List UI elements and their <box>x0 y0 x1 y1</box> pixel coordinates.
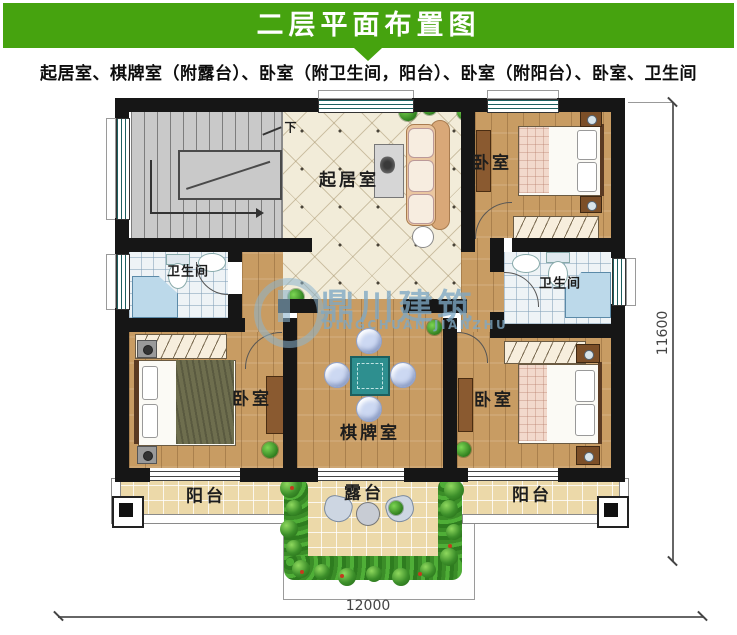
blanket <box>176 360 234 444</box>
wall-bottom-c <box>404 468 468 482</box>
window-sill <box>626 258 636 306</box>
bush <box>286 540 302 556</box>
terrace-label: 露台 <box>344 479 384 504</box>
dim-leader-top <box>628 102 672 103</box>
window-sill <box>487 90 559 99</box>
table-decor <box>380 156 395 174</box>
headboard <box>600 124 604 196</box>
sofa-cushion <box>408 194 434 224</box>
window-sill <box>318 90 414 99</box>
bush <box>420 562 436 578</box>
chess-room-label: 棋牌室 <box>340 419 400 444</box>
headboard <box>598 362 602 444</box>
pillow <box>577 130 597 160</box>
dim-height-label: 11600 <box>655 303 671 363</box>
watermark-logo-bar <box>278 290 290 322</box>
plant <box>262 442 278 458</box>
pillar-core <box>604 503 618 517</box>
wall-right-a <box>611 98 625 258</box>
bush <box>280 520 298 538</box>
pillow <box>575 370 595 402</box>
sofa-cushion <box>408 160 434 192</box>
stair-arrow-line <box>150 212 256 214</box>
plant <box>456 442 471 457</box>
headboard <box>134 360 139 444</box>
page-title: 二层平面布置图 <box>3 3 734 48</box>
bush <box>446 524 462 540</box>
balcony-right-label: 阳台 <box>512 481 552 506</box>
wall-bedroom-tr-bottom <box>512 238 625 252</box>
wall-living-right <box>461 112 475 252</box>
nightstand <box>137 340 157 358</box>
wall-left-a <box>115 98 129 118</box>
wall-stairs-bottom <box>115 238 312 252</box>
mahjong-table <box>350 356 390 396</box>
pillar-core <box>119 503 133 517</box>
stool <box>390 362 416 388</box>
bush <box>392 568 410 586</box>
pillow <box>577 162 597 192</box>
nightstand <box>137 446 157 464</box>
bathroom-left-label: 卫生间 <box>167 261 209 280</box>
dim-line-right <box>672 102 674 562</box>
wall-top-mid <box>412 98 487 112</box>
dresser <box>458 378 473 432</box>
corner-pillar-right <box>597 496 629 528</box>
mahjong-table-top <box>357 363 383 389</box>
pillow <box>142 366 158 400</box>
sink <box>512 254 540 273</box>
dim-line-bottom <box>58 616 703 618</box>
bedroom-bottom-right-label: 卧室 <box>474 386 514 411</box>
bush <box>444 480 464 500</box>
nightstand-knob <box>584 452 594 462</box>
window-right-bath <box>612 258 626 306</box>
nightstand <box>576 446 600 465</box>
stair-arrow-line <box>150 160 152 214</box>
bed-mattress <box>519 365 547 441</box>
side-table <box>412 226 434 248</box>
bathroom-right-label: 卫生间 <box>539 273 581 292</box>
nightstand-knob <box>584 350 594 360</box>
terrace-table <box>356 502 380 526</box>
bedroom-bottom-left-label: 卧室 <box>232 385 272 410</box>
wall-bath-left-a <box>228 252 242 262</box>
bush <box>366 566 382 582</box>
plant <box>389 501 403 515</box>
wall-chess-right <box>443 318 457 468</box>
bush <box>292 560 310 578</box>
nightstand <box>576 344 600 363</box>
window-top-bedroom <box>487 99 559 113</box>
wall-bottom-a <box>115 468 150 482</box>
bedroom-top-right-label: 卧室 <box>472 149 512 174</box>
window-top-living <box>318 99 414 113</box>
pillow <box>575 404 595 436</box>
nightstand <box>580 196 602 213</box>
nightstand-knob <box>143 451 153 461</box>
window-sill <box>106 254 116 310</box>
berry <box>290 486 294 490</box>
bush <box>286 500 302 516</box>
floor-plan-page: 二层平面布置图 起居室、棋牌室（附露台）、卧室（附卫生间，阳台）、卧室（附阳台）… <box>0 0 737 635</box>
sliding-door-balcony-left <box>150 471 240 481</box>
wall-bottom-d <box>558 468 625 482</box>
bed-mattress <box>519 127 549 193</box>
room-list-subtitle: 起居室、棋牌室（附露台）、卧室（附卫生间，阳台）、卧室（附阳台）、卧室、卫生间 <box>0 59 737 84</box>
nightstand-knob <box>587 115 597 125</box>
berry <box>418 572 422 576</box>
nightstand-knob <box>587 201 597 211</box>
nightstand-knob <box>143 345 153 355</box>
wall-bath-right-a <box>490 238 504 272</box>
window-left-stairs <box>116 118 130 220</box>
wardrobe-top-right <box>513 216 599 239</box>
stair-arrow-head <box>256 208 264 218</box>
living-room-label: 起居室 <box>319 166 379 191</box>
bush <box>314 564 330 580</box>
pillow <box>142 404 158 438</box>
wall-left-rooms-mid <box>115 318 245 332</box>
wall-bath-right-bottom <box>490 324 625 338</box>
wall-top-left <box>115 98 318 112</box>
window-left-bath <box>116 254 130 310</box>
bush <box>440 500 458 518</box>
watermark-latin: DINGCHUAN JIANZHU <box>323 318 508 332</box>
nightstand <box>580 110 602 127</box>
berry <box>340 574 344 578</box>
wardrobe-bottom-right <box>504 341 586 364</box>
corner-pillar-left <box>112 496 144 528</box>
wall-left-c <box>115 308 129 482</box>
wall-bottom-b <box>240 468 318 482</box>
balcony-left-label: 阳台 <box>186 482 226 507</box>
stairs-down-label: 下 <box>284 119 297 136</box>
dim-width-label: 12000 <box>328 598 408 614</box>
bush <box>440 548 458 566</box>
sliding-door-balcony-right <box>468 471 558 481</box>
stool <box>324 362 350 388</box>
window-sill <box>106 118 116 220</box>
sofa-cushion <box>408 128 434 158</box>
berry <box>448 544 452 548</box>
berry <box>300 570 304 574</box>
